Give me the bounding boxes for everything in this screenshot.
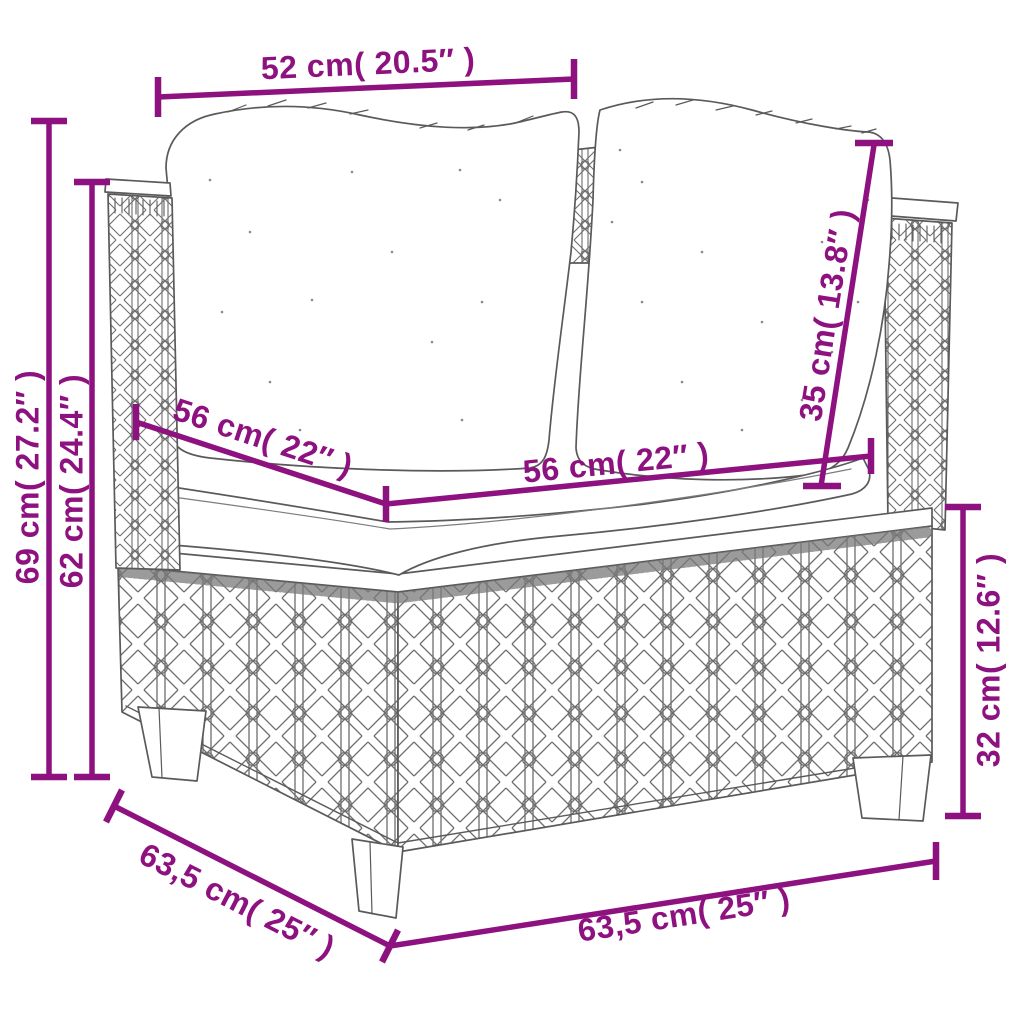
dim-overall-height-label: 69 cm( 27.2″ )	[10, 370, 47, 584]
dim-arm-height-label: 62 cm( 24.4″ )	[54, 374, 91, 588]
right-leg	[853, 755, 931, 821]
dim-base-height-label: 32 cm( 12.6″ )	[971, 553, 1008, 767]
right-post-wicker	[884, 218, 952, 530]
dimension-diagram: 52 cm( 20.5″ ) 69 cm( 27.2″ ) 62 cm( 24.…	[0, 0, 1024, 1024]
left-leg	[138, 707, 206, 781]
front-corner-leg	[352, 839, 403, 918]
left-post-cap	[105, 179, 171, 196]
left-post-wicker	[108, 194, 180, 570]
